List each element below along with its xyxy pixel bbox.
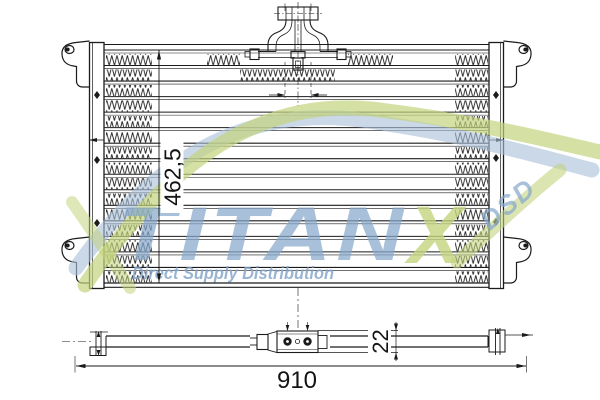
bracket-bottom-right xyxy=(504,237,532,283)
fin-segment xyxy=(240,69,335,80)
fin-segment xyxy=(106,85,152,96)
technical-drawing-page: TITAN X DSD Direct Supply Distribution 4… xyxy=(0,0,600,400)
width-dimension-label: 910 xyxy=(277,367,317,394)
side-view-left-foot xyxy=(62,331,108,356)
fin-segment xyxy=(207,54,240,65)
fin-segment xyxy=(455,69,488,80)
depth-dimension-label: 22 xyxy=(368,329,393,353)
top-fitting xyxy=(245,2,351,106)
fin-segment xyxy=(106,116,152,127)
dimension-width: 910 xyxy=(75,356,527,394)
fin-segment xyxy=(455,163,488,174)
fin-segment xyxy=(106,163,152,174)
condenser-technical-drawing: TITAN X DSD Direct Supply Distribution 4… xyxy=(0,0,600,400)
fin-segment xyxy=(455,54,488,65)
fin-segment xyxy=(106,69,152,80)
watermark-tagline: Direct Supply Distribution xyxy=(132,263,334,283)
pipe-fitting-left xyxy=(250,49,259,60)
fin-segment xyxy=(106,100,152,111)
fin-segment xyxy=(455,85,488,96)
side-view xyxy=(62,322,533,356)
fin-segment xyxy=(348,54,393,65)
side-view-fitting-block xyxy=(250,322,327,353)
center-hole xyxy=(295,339,299,343)
height-dimension-label: 462,5 xyxy=(160,148,186,206)
watermark-brand-x-letter: X xyxy=(404,190,467,281)
fin-segment xyxy=(106,147,152,158)
right-side-plate xyxy=(489,43,504,289)
bracket-top-right xyxy=(504,41,532,87)
side-view-right-foot xyxy=(489,328,533,355)
bracket-top-left xyxy=(62,41,90,87)
fin-segment xyxy=(455,178,488,189)
fin-segment xyxy=(455,100,488,111)
fin-segment xyxy=(106,54,152,65)
pipe-fitting-right xyxy=(337,49,346,60)
dimension-depth: 22 xyxy=(318,322,398,361)
fin-segment xyxy=(106,132,152,143)
